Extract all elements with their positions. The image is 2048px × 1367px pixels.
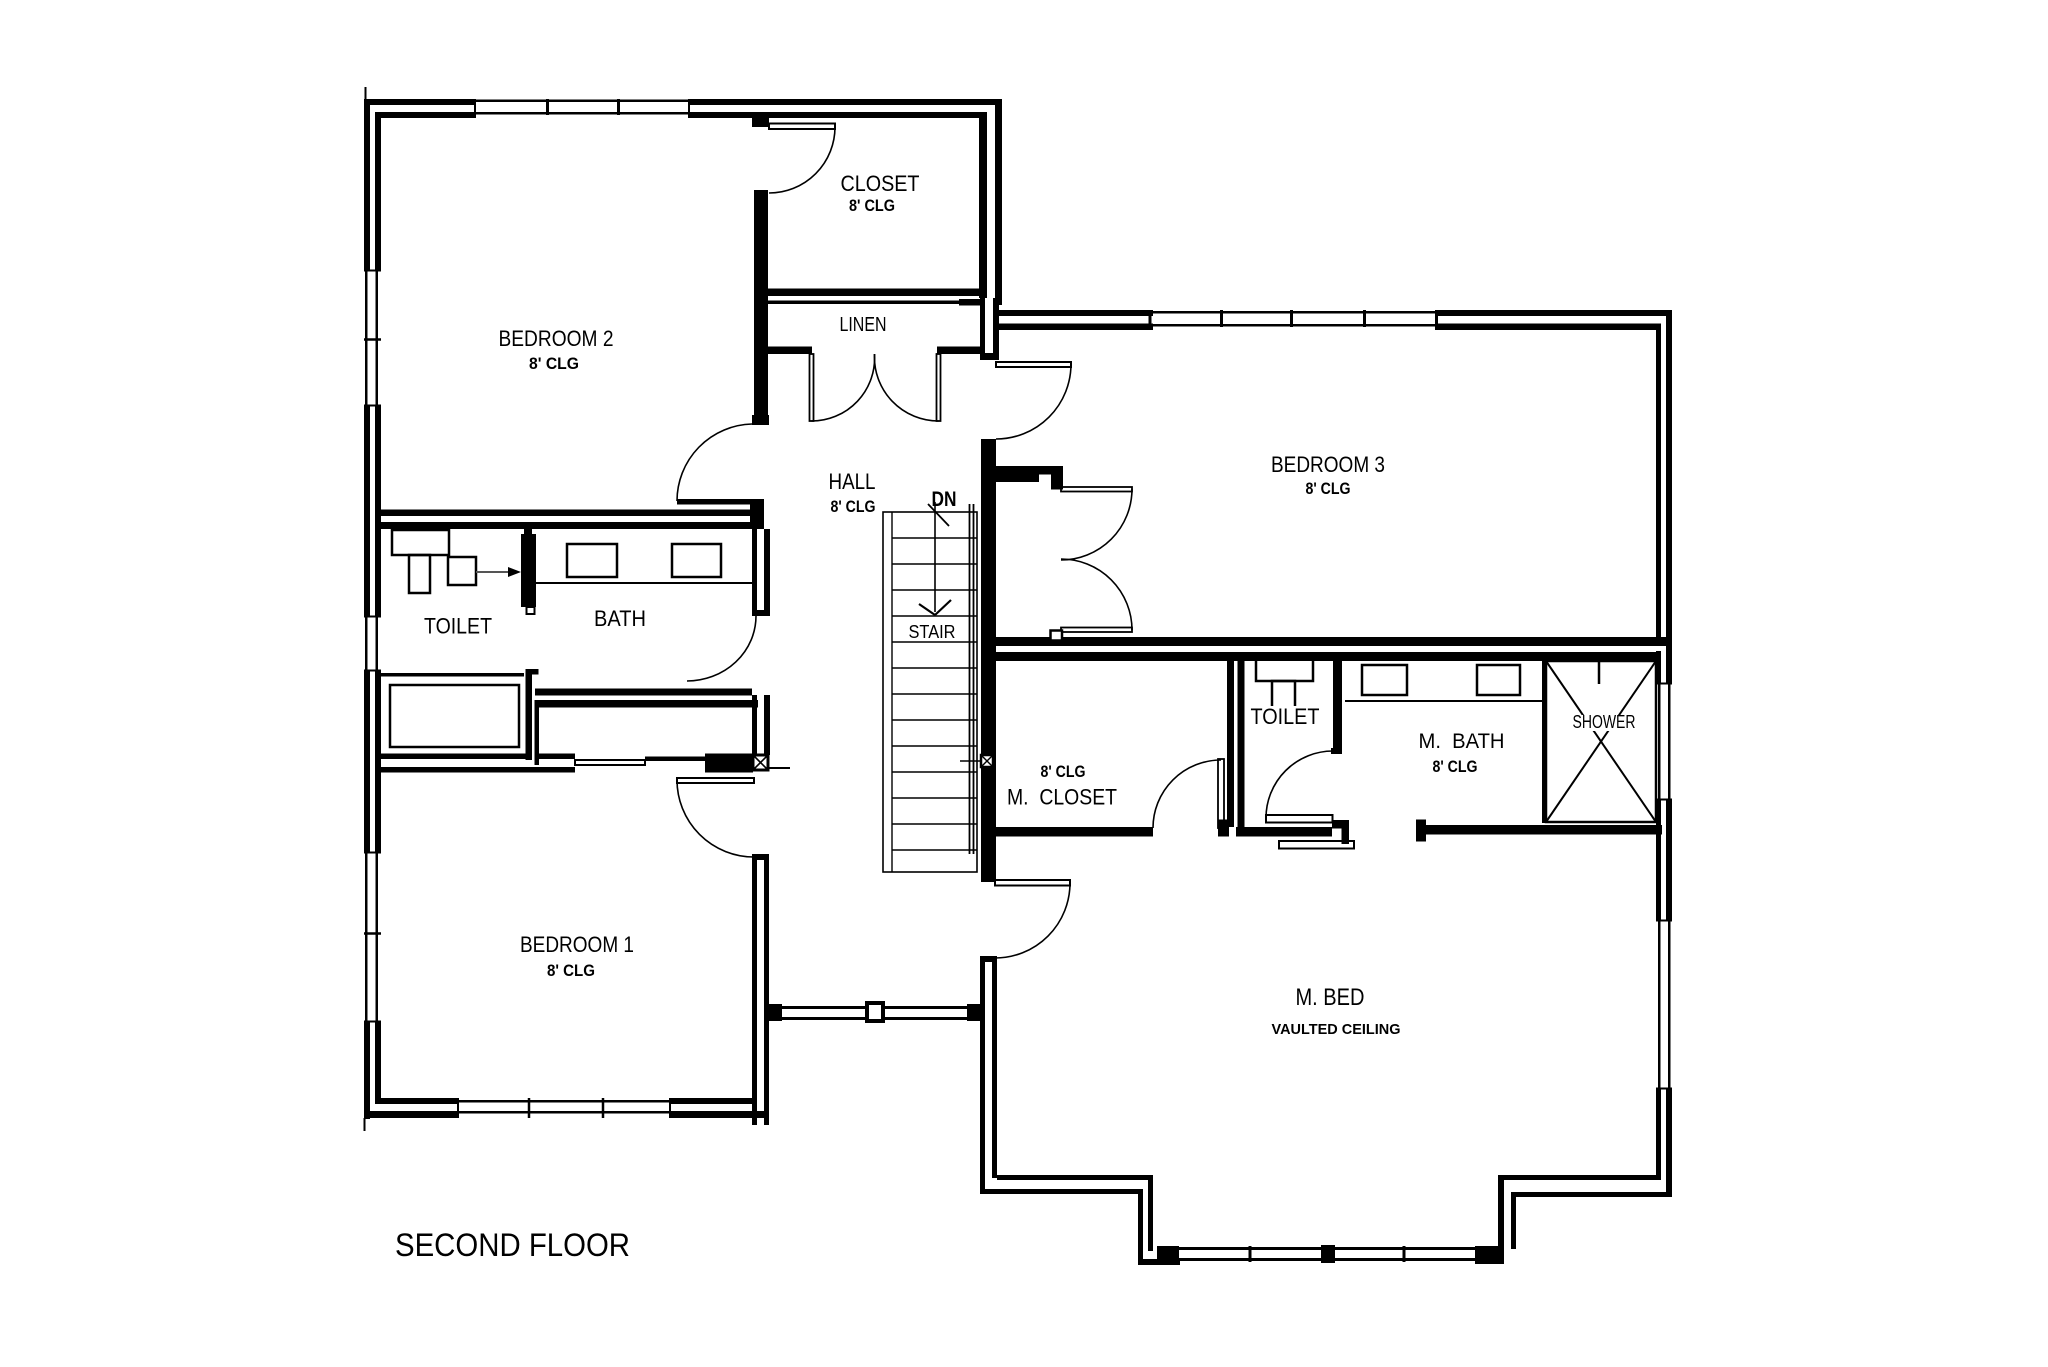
svg-text:HALL: HALL	[829, 469, 876, 494]
svg-text:8' CLG: 8' CLG	[1041, 762, 1086, 781]
svg-text:8' CLG: 8' CLG	[1306, 479, 1351, 498]
svg-text:CLOSET: CLOSET	[841, 171, 920, 196]
svg-text:STAIR: STAIR	[909, 622, 956, 642]
svg-text:LINEN: LINEN	[840, 314, 887, 336]
svg-text:SECOND FLOOR: SECOND FLOOR	[395, 1227, 630, 1263]
svg-text:M. CLOSET: M. CLOSET	[1007, 785, 1117, 810]
svg-text:M. BATH: M. BATH	[1419, 730, 1505, 753]
svg-text:BEDROOM 2: BEDROOM 2	[499, 326, 614, 351]
svg-text:BEDROOM 1: BEDROOM 1	[520, 932, 634, 957]
svg-text:8' CLG: 8' CLG	[529, 354, 579, 373]
svg-text:TOILET: TOILET	[1251, 704, 1320, 729]
svg-text:8' CLG: 8' CLG	[849, 196, 895, 215]
svg-text:VAULTED CEILING: VAULTED CEILING	[1272, 1021, 1401, 1038]
svg-text:8' CLG: 8' CLG	[1433, 757, 1478, 776]
svg-text:SHOWER: SHOWER	[1573, 712, 1636, 732]
svg-text:M. BED: M. BED	[1296, 984, 1365, 1011]
svg-text:BATH: BATH	[594, 606, 646, 631]
svg-text:TOILET: TOILET	[424, 614, 492, 639]
svg-text:DN: DN	[932, 488, 957, 511]
svg-text:8' CLG: 8' CLG	[547, 961, 595, 980]
svg-text:BEDROOM 3: BEDROOM 3	[1271, 452, 1385, 477]
svg-text:8' CLG: 8' CLG	[831, 497, 876, 516]
